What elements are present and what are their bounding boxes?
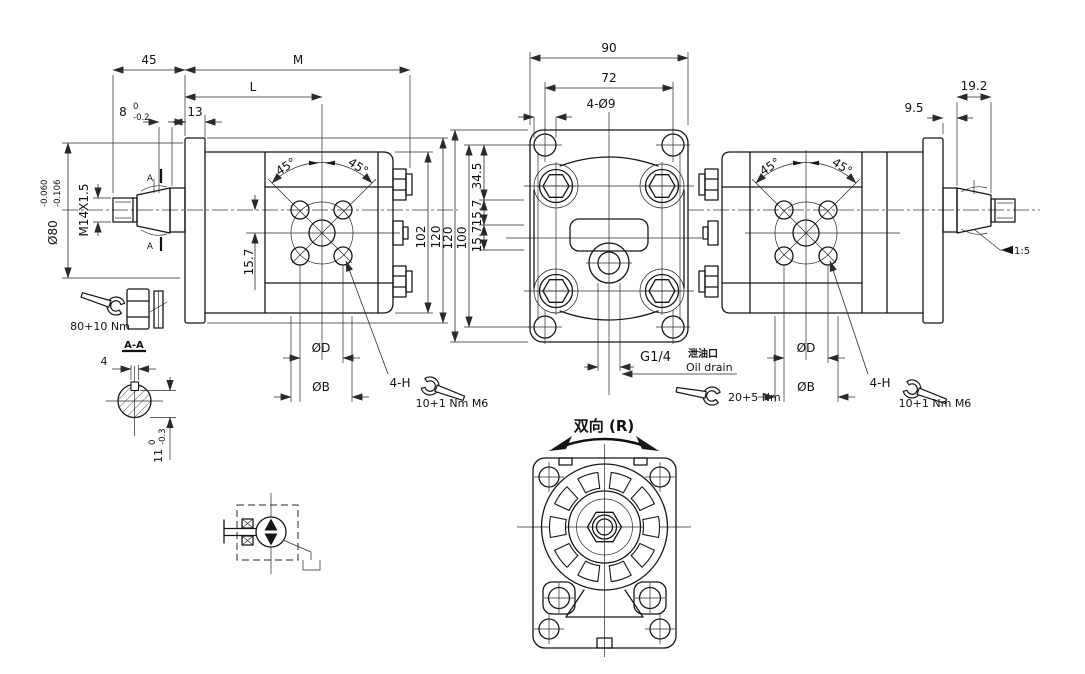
rear-view xyxy=(517,444,691,657)
drawing-canvas: A A 80+10 Nm 45° 45° 45 M L 13 8 0 -0.2 xyxy=(0,0,1085,674)
dim-shaft-seat-dia: Ø80 -0.060 -0.106 xyxy=(40,180,63,245)
drain-label-en: Oil drain xyxy=(686,361,733,374)
shaft-nut-torque-label: 80+10 Nm xyxy=(70,320,130,333)
bolt-torque-left: 10+1 Nm M6 xyxy=(416,397,489,410)
hydraulic-symbol xyxy=(224,493,320,574)
dim-dia-b-right: ØB xyxy=(797,380,815,394)
dim-13: 13 xyxy=(187,105,202,119)
bolt-torque-right: 10+1 Nm M6 xyxy=(899,397,972,410)
pump-body xyxy=(722,152,923,313)
mount-holes-callout: 4-Ø9 xyxy=(586,97,615,111)
dim-dia-d-left: ØD xyxy=(312,341,331,355)
dim-15-7-a: 15.7 xyxy=(470,200,484,227)
mount-flange xyxy=(923,138,943,323)
port-fittings xyxy=(699,169,718,297)
svg-text:Ø80: Ø80 xyxy=(46,220,60,245)
wrench-icon xyxy=(79,286,126,317)
bolt-callout-left: 4-H xyxy=(390,376,411,390)
dim-45: 45 xyxy=(141,53,156,67)
section-marker-a-bottom: A xyxy=(147,242,154,252)
angle-label-right: 45° xyxy=(829,155,854,178)
dim-8-tol-lower: -0.2 xyxy=(133,113,150,123)
dim-key-width: 4 xyxy=(101,355,108,368)
angle-label-right: 45° xyxy=(345,155,370,178)
svg-text:11: 11 xyxy=(152,449,165,463)
dim-15-7-b: 15.7 xyxy=(470,226,484,253)
mount-flange xyxy=(185,138,205,323)
taper-symbol-icon xyxy=(1001,246,1013,254)
dim-key-depth: 11 0 -0.3 xyxy=(148,428,168,463)
dim-9-5: 9.5 xyxy=(904,101,923,115)
direction-label: 双向 (R) xyxy=(574,417,634,435)
wrench-icon xyxy=(675,381,721,406)
dim-120-front: 120 xyxy=(441,227,455,250)
drawing-page: A A 80+10 Nm 45° 45° 45 M L 13 8 0 -0.2 xyxy=(0,0,1085,674)
bolt-callout-right: 4-H xyxy=(870,376,891,390)
drain-port-label: G1/4 xyxy=(640,350,671,365)
taper-label: 1:5 xyxy=(1014,246,1030,257)
dim-dia-d-right: ØD xyxy=(797,341,816,355)
dim-8: 8 xyxy=(119,105,127,119)
dim-thread: M14X1.5 xyxy=(77,184,91,237)
dim-l: L xyxy=(250,80,257,94)
angle-label-left: 45° xyxy=(757,155,782,178)
drive-shaft xyxy=(113,179,185,235)
shaft-nut-washer xyxy=(127,289,167,329)
svg-text:-0.3: -0.3 xyxy=(158,428,168,445)
svg-text:-0.106: -0.106 xyxy=(53,180,63,207)
bidirectional-arrow xyxy=(563,439,645,446)
dim-90: 90 xyxy=(601,41,616,55)
dim-15-7-left: 15.7 xyxy=(242,249,256,276)
section-marker-a-top: A xyxy=(147,174,154,184)
section-title: A-A xyxy=(124,340,144,351)
dim-dia-b-left: ØB xyxy=(312,380,330,394)
right-side-view: 45° 45° 19.2 9.5 ØD ØB 4-H 10+1 Nm M6 1:… xyxy=(688,79,1040,410)
pump-body xyxy=(205,152,393,313)
dim-34-5: 34.5 xyxy=(470,163,484,190)
front-view: 90 72 4-Ø9 120 100 34.5 15.7 15.7 G1/4 泄… xyxy=(441,41,781,451)
flow-triangle-up xyxy=(265,519,278,531)
flow-triangle-down xyxy=(265,534,278,546)
dim-m: M xyxy=(293,53,303,67)
svg-text:-0.060: -0.060 xyxy=(40,180,50,207)
section-a-a: A-A 4 11 0 -0.3 xyxy=(101,340,177,463)
dim-102: 102 xyxy=(414,226,428,249)
svg-text:0: 0 xyxy=(148,440,158,445)
dim-100: 100 xyxy=(455,227,469,250)
port-torque-label: 20+5 Nm xyxy=(728,391,781,404)
drain-tank-symbol xyxy=(303,560,320,570)
dim-19-2: 19.2 xyxy=(961,79,988,93)
dim-72: 72 xyxy=(601,71,616,85)
keyway-slot xyxy=(131,382,139,391)
angle-label-left: 45° xyxy=(273,155,298,178)
drain-label-cn: 泄油口 xyxy=(688,347,718,360)
dim-8-tol-upper: 0 xyxy=(133,102,138,112)
